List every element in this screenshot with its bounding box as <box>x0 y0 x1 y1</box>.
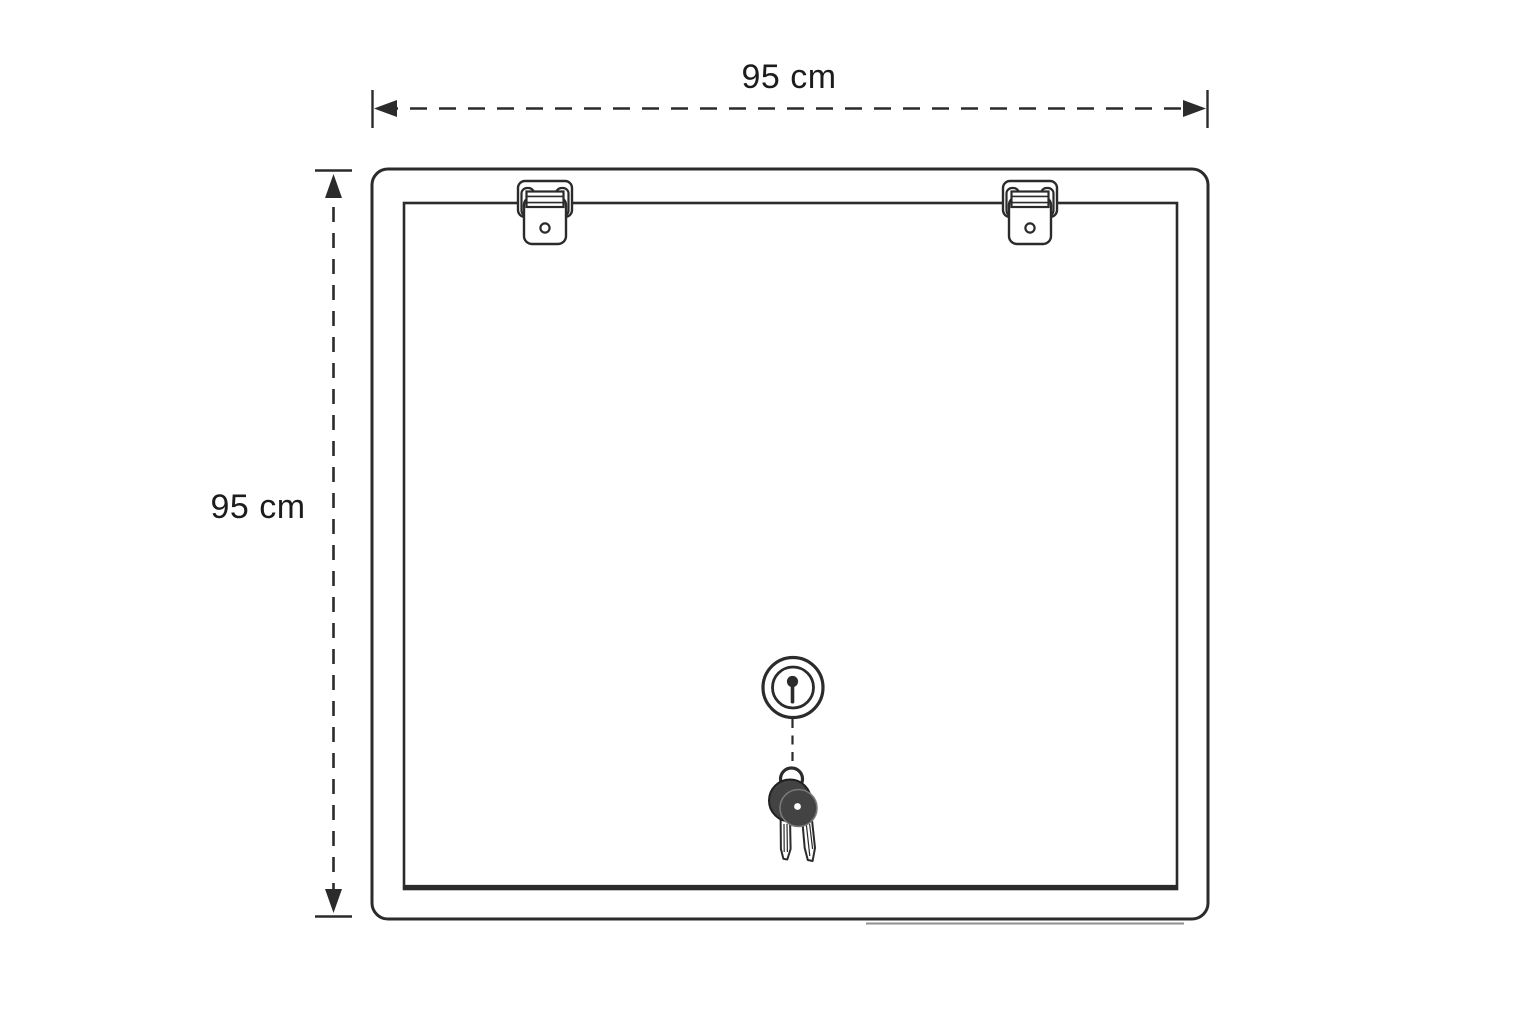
width-arrow-right-icon <box>1183 100 1206 117</box>
hinge-right <box>1003 181 1057 244</box>
height-arrow-up-icon <box>325 174 342 198</box>
height-dimension <box>315 171 352 917</box>
height-arrow-down-icon <box>325 889 342 913</box>
width-arrow-left-icon <box>374 100 397 117</box>
keyhole-slot <box>791 684 795 704</box>
hinge-left <box>518 181 572 244</box>
key-head-hole <box>794 803 801 810</box>
cylinder-lock <box>763 658 823 718</box>
width-dimension-label: 95 cm <box>689 59 889 95</box>
diagram-canvas: 95 cm 95 cm <box>0 0 1536 1024</box>
height-dimension-label: 95 cm <box>183 489 333 525</box>
